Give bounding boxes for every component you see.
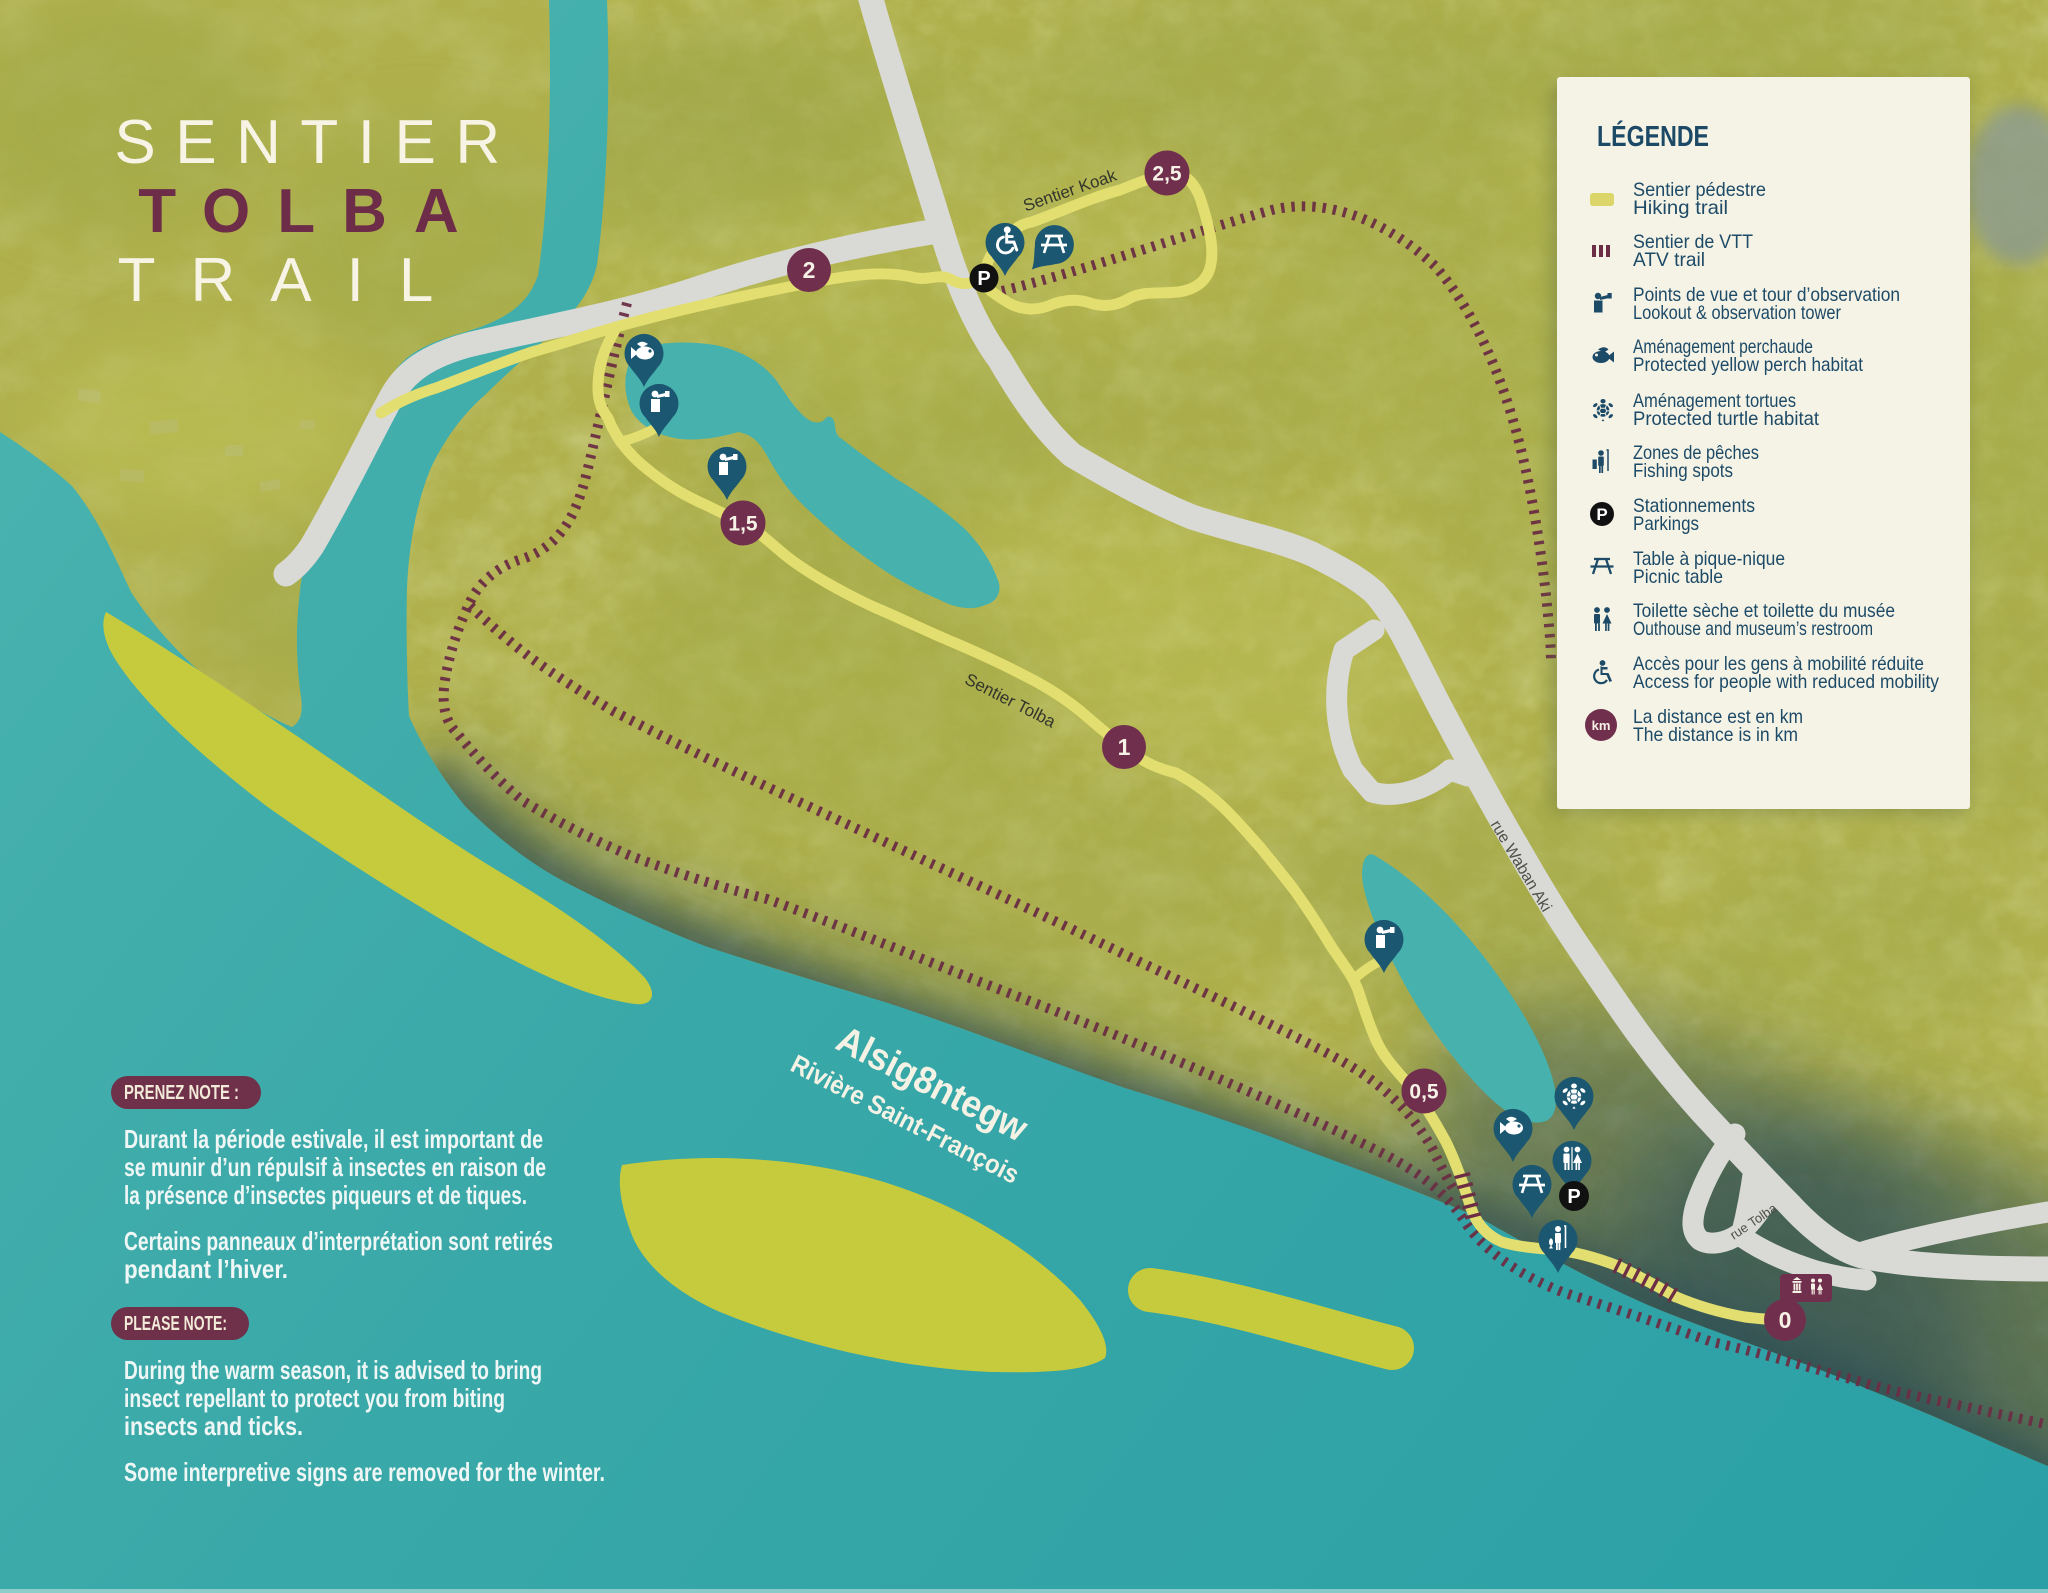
svg-text:1: 1 — [1118, 734, 1131, 760]
svg-text:Parkings: Parkings — [1633, 513, 1699, 535]
svg-text:TRAIL: TRAIL — [118, 246, 469, 315]
svg-text:Certains panneaux d’interpréta: Certains panneaux d’interprétation sont … — [124, 1226, 553, 1256]
svg-text:P: P — [1567, 1186, 1580, 1208]
svg-text:1,5: 1,5 — [728, 513, 758, 536]
svg-text:P: P — [1596, 505, 1607, 524]
svg-text:Picnic table: Picnic table — [1633, 566, 1723, 588]
svg-text:Protected turtle habitat: Protected turtle habitat — [1633, 408, 1820, 430]
svg-text:SENTIER: SENTIER — [114, 108, 519, 177]
svg-text:2,5: 2,5 — [1152, 163, 1182, 186]
svg-text:Hiking trail: Hiking trail — [1633, 197, 1728, 219]
svg-text:LÉGENDE: LÉGENDE — [1597, 119, 1709, 153]
svg-text:Access for people with reduced: Access for people with reduced mobility — [1633, 671, 1939, 693]
svg-text:Durant la période estivale, il: Durant la période estivale, il est impor… — [124, 1124, 543, 1154]
svg-text:Fishing spots: Fishing spots — [1633, 460, 1733, 482]
svg-text:Lookout & observation tower: Lookout & observation tower — [1633, 302, 1841, 324]
svg-text:TOLBA: TOLBA — [138, 177, 485, 246]
svg-text:se munir d’un répulsif à insec: se munir d’un répulsif à insectes en rai… — [124, 1152, 546, 1182]
svg-text:0,5: 0,5 — [1409, 1081, 1439, 1104]
svg-text:la présence d’insectes piqueur: la présence d’insectes piqueurs et de ti… — [124, 1180, 527, 1210]
svg-text:2: 2 — [803, 257, 816, 283]
svg-text:ATV trail: ATV trail — [1633, 249, 1705, 271]
svg-text:km: km — [1592, 718, 1611, 733]
svg-text:Some interpretive signs are re: Some interpretive signs are removed for … — [124, 1457, 605, 1487]
svg-text:insects and ticks.: insects and ticks. — [124, 1411, 303, 1441]
svg-text:pendant l’hiver.: pendant l’hiver. — [124, 1254, 288, 1284]
svg-text:0: 0 — [1779, 1307, 1792, 1333]
svg-text:Outhouse and museum’s restroom: Outhouse and museum’s restroom — [1633, 618, 1873, 640]
svg-text:PLEASE NOTE:: PLEASE NOTE: — [124, 1313, 227, 1335]
svg-text:P: P — [977, 268, 990, 290]
svg-text:Protected yellow perch habitat: Protected yellow perch habitat — [1633, 354, 1864, 376]
svg-text:insect repellant to protect yo: insect repellant to protect you from bit… — [124, 1383, 505, 1413]
svg-text:The distance is in km: The distance is in km — [1633, 724, 1798, 746]
svg-text:During the warm season, it is: During the warm season, it is advised to… — [124, 1355, 542, 1385]
svg-text:PRENEZ NOTE :: PRENEZ NOTE : — [124, 1082, 239, 1104]
